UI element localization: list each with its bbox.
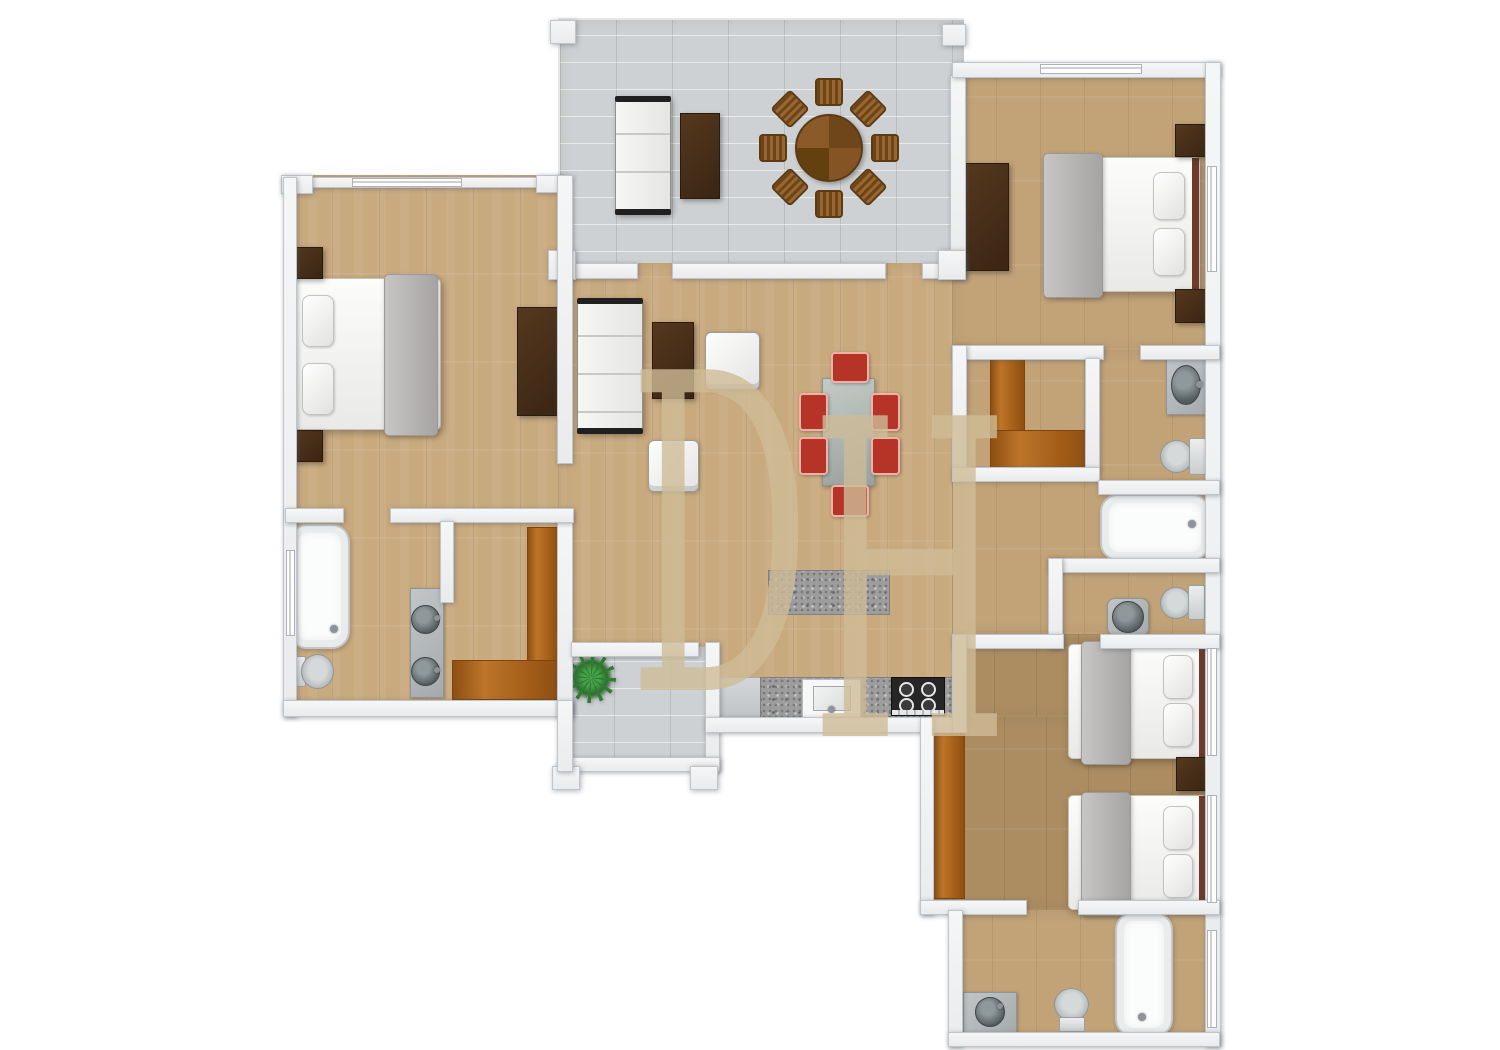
- toilet-br-tank: [1059, 1017, 1085, 1032]
- nightstand-tr-top: [1175, 124, 1207, 157]
- bedroom-bath-divider-a: [285, 508, 344, 523]
- wicker-chair-w: [759, 134, 787, 162]
- dining-table: [822, 378, 875, 486]
- closet-right-bottom-wall: [952, 467, 1100, 482]
- toilet-upper-tank: [1189, 438, 1206, 475]
- window-bathroom-br-right: [1207, 930, 1217, 1028]
- kitchen-bottom-wall: [705, 717, 954, 733]
- window-bedroom-tr-top: [1040, 64, 1142, 74]
- wicker-chair-s: [815, 190, 843, 218]
- bedroom-tr-bottom-wall-b: [1140, 345, 1220, 360]
- floor-plan: D H: [0, 0, 1500, 1050]
- bedroom-br-bottom-wall-a: [920, 900, 1027, 915]
- terrace-pillar-bottom-right: [938, 250, 966, 280]
- dresser-top-right: [962, 163, 1009, 271]
- bathtub-left-faucet: [330, 625, 338, 633]
- closet-right-floor-horizontal: [990, 430, 1087, 469]
- terrace-sofa: [615, 96, 671, 215]
- bed-left-pillow-1: [302, 295, 334, 347]
- toilet-left-bowl: [301, 654, 334, 689]
- foyer-left-wall: [557, 700, 573, 772]
- kitchen-island: [768, 570, 890, 615]
- bedroom-tr-bottom-wall-a: [952, 345, 1104, 360]
- pedestal-sink-basin: [1112, 601, 1144, 633]
- bed-tr-pillow-1: [1153, 172, 1185, 220]
- window-bedroom-left-top: [352, 178, 462, 187]
- bedroom-br-top-wall-a: [952, 634, 1064, 649]
- kitchen-sink-faucet: [828, 706, 835, 713]
- armchair-1: [705, 332, 760, 390]
- foyer-right-wall: [705, 642, 720, 772]
- dining-chair-right-2: [871, 437, 900, 475]
- closet-left-floor-horizontal: [452, 660, 559, 700]
- right-wing-left-wall-mid: [952, 345, 967, 482]
- bed-bottom-1: [1068, 644, 1207, 759]
- bed-b1-blanket: [1081, 641, 1131, 765]
- bed-b2-blanket: [1081, 792, 1131, 916]
- nightstand-tr-bottom: [1175, 289, 1207, 323]
- bed-top-right: [1048, 157, 1200, 292]
- terrace-pillar-top-left: [550, 20, 576, 44]
- vanity-left-faucet-2: [434, 667, 440, 673]
- dining-chair-top: [831, 352, 869, 383]
- bedroom-br-top-wall-b: [1100, 634, 1220, 649]
- window-bedroom-br-right-2: [1207, 795, 1217, 903]
- wicker-chair-e: [871, 134, 899, 162]
- left-wing-bottom-wall: [283, 700, 573, 717]
- left-wing-right-wall-upper: [557, 175, 573, 464]
- left-wing-right-wall-lower: [557, 512, 573, 717]
- kitchen-bedroom-divider: [952, 634, 967, 733]
- window-bedroom-tr-right: [1207, 166, 1217, 272]
- foyer-top-wall: [571, 642, 699, 657]
- foyer-pillar-right: [690, 766, 718, 790]
- bed-left-pillow-2: [302, 363, 334, 415]
- terrace-coffee-table: [680, 113, 720, 199]
- stove-burner-1: [899, 682, 914, 697]
- bed-b1-pillow-1: [1163, 655, 1193, 699]
- terrace-dining-table: [795, 114, 863, 182]
- bathtub-left: [289, 524, 350, 649]
- dresser-left: [517, 307, 560, 416]
- nightstand-bottom-right: [1176, 757, 1207, 791]
- bathtub-br-faucet: [1138, 1013, 1146, 1021]
- closet-right-wall: [1085, 358, 1100, 470]
- left-wing-left-wall: [283, 177, 297, 717]
- bed-bottom-2: [1068, 795, 1207, 910]
- bed-left: [289, 278, 441, 430]
- gas-stove: [891, 677, 945, 716]
- closet-strip-bottom-floor: [933, 730, 965, 899]
- bath-closet-divider: [440, 521, 454, 603]
- vanity-left-faucet-1: [434, 615, 440, 621]
- bed-left-blanket: [384, 274, 438, 436]
- kitchen-sink-unit: [802, 679, 861, 718]
- bathroom-br-bottom-wall: [948, 1032, 1220, 1047]
- kitchen-cabinet: [713, 677, 763, 719]
- window-bedroom-br-right-1: [1207, 648, 1217, 756]
- bed-b2-pillow-2: [1163, 854, 1193, 898]
- sink-br-faucet: [997, 1003, 1003, 1009]
- bedroom-bath-divider-b: [390, 508, 574, 523]
- armchair-2: [648, 440, 699, 492]
- wall-sink-upper-faucet: [1196, 381, 1203, 388]
- terrace-right-wall: [950, 75, 966, 279]
- wicker-chair-n: [815, 78, 843, 106]
- bath-upper-divider-wall: [1098, 480, 1220, 495]
- stove-knobs: [892, 710, 944, 715]
- closet-left-floor-vertical: [527, 527, 559, 675]
- sink-br-basin: [975, 997, 1005, 1027]
- bedroom-br-bottom-wall-b: [1078, 900, 1220, 915]
- bed-tr-blanket: [1043, 153, 1103, 298]
- bed-tr-pillow-2: [1153, 228, 1185, 276]
- toilet-wc-tank: [1188, 585, 1205, 620]
- bed-tr-headboard: [1192, 158, 1199, 291]
- dining-chair-left-2: [799, 437, 828, 475]
- foyer-plant: [566, 653, 616, 703]
- dining-chair-left-1: [799, 393, 828, 431]
- tub-room-bottom-wall: [1048, 558, 1220, 573]
- bathroom-br-left-wall: [948, 910, 963, 1047]
- living-sofa: [577, 298, 643, 434]
- terrace-pillar-top-right: [942, 24, 966, 46]
- dining-chair-right-1: [871, 393, 900, 431]
- bedroom-br-left-wall: [920, 717, 934, 915]
- bed-b1-pillow-2: [1163, 703, 1193, 747]
- window-bathroom-left: [286, 550, 295, 636]
- living-coffee-table: [652, 322, 694, 399]
- stove-burner-2: [921, 682, 936, 697]
- dining-chair-bottom: [831, 485, 869, 517]
- terrace-bottom-wall-b: [672, 263, 886, 279]
- bathtub-upper-faucet: [1188, 520, 1196, 528]
- bed-b2-pillow-1: [1163, 806, 1193, 850]
